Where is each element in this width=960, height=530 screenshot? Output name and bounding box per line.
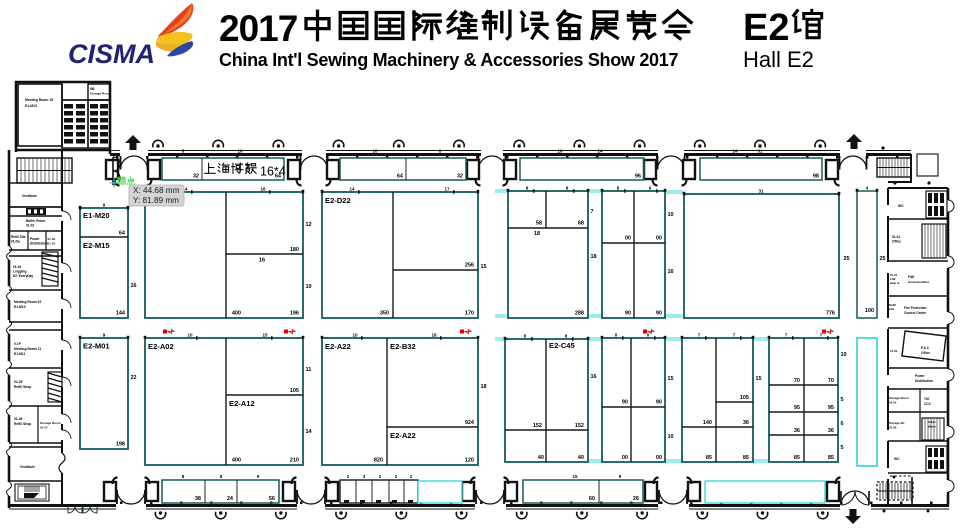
svg-text:Buffer Room: Buffer Room [26,219,45,223]
svg-text:16: 16 [237,149,243,154]
svg-text:85: 85 [828,455,834,461]
svg-text:26: 26 [633,496,639,502]
svg-text:24: 24 [597,149,603,154]
svg-text:196: 196 [290,311,299,317]
svg-text:01-06: 01-06 [14,417,23,421]
svg-text:Distribution: Distribution [915,379,933,383]
svg-text:00: 00 [622,455,628,461]
svg-text:CCC: CCC [924,402,932,406]
svg-text:90: 90 [625,311,631,317]
svg-text:12: 12 [306,222,312,228]
svg-text:Generator/Elec: Generator/Elec [908,280,930,284]
svg-text:120: 120 [465,458,474,464]
svg-text:Fire Protection: Fire Protection [904,306,927,310]
svg-text:E1-M10: E1-M10 [14,305,26,309]
svg-text:E2-D22: E2-D22 [325,196,351,205]
svg-text:14: 14 [306,429,313,435]
svg-text:198: 198 [116,442,125,448]
svg-text:WC: WC [894,457,900,461]
svg-text:96: 96 [635,174,641,180]
svg-text:Meeting Room 11: Meeting Room 11 [14,347,41,351]
svg-text:01-05: 01-05 [14,380,23,384]
svg-text:Power: Power [915,374,925,378]
svg-text:01-05: 01-05 [889,426,897,430]
svg-text:Water: Water [928,425,937,429]
svg-text:56: 56 [269,496,275,502]
svg-text:350: 350 [380,311,389,317]
svg-text:5: 5 [841,397,844,403]
svg-text:01-07: 01-07 [40,426,48,430]
svg-text:6: 6 [841,421,844,427]
svg-text:Help to: Help to [890,281,900,285]
svg-text:Office: Office [921,351,930,355]
svg-text:Odds: Odds [928,420,936,424]
svg-text:25: 25 [844,256,850,262]
svg-text:256: 256 [465,263,474,269]
svg-text:F&E: F&E [908,275,914,279]
svg-text:152: 152 [575,423,584,429]
svg-text:Meeting Room 10: Meeting Room 10 [14,300,41,304]
svg-text:105: 105 [740,395,749,401]
svg-text:10: 10 [352,333,358,338]
svg-text:10: 10 [306,284,312,290]
svg-text:16: 16 [668,269,674,275]
svg-text:16: 16 [591,374,597,380]
svg-text:210: 210 [290,458,299,464]
svg-text:01-01: 01-01 [892,235,900,239]
svg-text:18: 18 [481,384,487,390]
svg-text:Vestibule: Vestibule [20,465,35,469]
svg-text:24: 24 [227,496,234,502]
svg-text:90: 90 [622,400,628,406]
svg-text:152: 152 [533,423,542,429]
svg-text:15: 15 [481,264,487,270]
svg-text:820: 820 [374,458,383,464]
svg-text:40: 40 [578,455,584,461]
svg-text:11: 11 [306,367,312,373]
svg-text:Hall E2: Hall E2 [743,47,814,72]
svg-text:E2-C45: E2-C45 [549,341,576,350]
svg-text:Site: Site [889,307,895,311]
svg-text:776: 776 [826,311,835,317]
svg-text:5: 5 [841,445,844,451]
svg-text:180: 180 [290,247,299,253]
svg-text:85: 85 [706,455,712,461]
svg-text:85: 85 [794,455,800,461]
svg-text:22: 22 [131,375,137,381]
svg-text:95: 95 [828,405,834,411]
svg-text:10: 10 [372,149,378,154]
svg-text:01-10: 01-10 [48,242,56,246]
svg-text:01-03: 01-03 [13,265,21,269]
svg-text:16*4: 16*4 [260,165,286,179]
svg-text:01-02: 01-02 [890,349,898,353]
svg-text:18: 18 [431,333,437,338]
svg-text:16: 16 [260,187,266,192]
svg-text:Storage Ro: Storage Ro [889,421,905,425]
svg-text:00: 00 [625,236,631,242]
svg-text:32: 32 [457,174,463,180]
svg-text:14: 14 [349,187,355,192]
svg-text:16: 16 [259,258,265,264]
svg-text:E2-M15: E2-M15 [83,241,110,250]
svg-text:58: 58 [536,221,542,227]
svg-text:E2-A12: E2-A12 [229,399,255,408]
svg-text:15: 15 [572,474,578,479]
svg-text:40: 40 [538,455,544,461]
svg-text:15: 15 [756,376,762,382]
svg-text:X: 44.68 mm: X: 44.68 mm [133,186,180,195]
svg-text:E2-A22: E2-A22 [325,342,351,351]
svg-text:140: 140 [703,420,712,426]
svg-text:China Int'l Sewing Machinery &: China Int'l Sewing Machinery & Accessori… [219,50,678,70]
svg-text:Meeting Room 15: Meeting Room 15 [25,98,53,102]
svg-text:Storage Room: Storage Room [889,396,909,400]
svg-text:01-02: 01-02 [48,237,56,241]
svg-text:E1-M13: E1-M13 [25,104,37,108]
svg-text:25: 25 [880,256,886,262]
svg-text:E2-A22: E2-A22 [390,431,416,440]
svg-text:01-02: 01-02 [26,224,34,228]
svg-text:CISMA: CISMA [68,39,155,69]
svg-text:90: 90 [656,400,662,406]
svg-text:64: 64 [119,231,126,237]
svg-text:15: 15 [668,376,674,382]
svg-text:E2-A02: E2-A02 [148,342,174,351]
svg-text:00: 00 [656,455,662,461]
svg-text:144: 144 [116,311,126,317]
svg-text:P.A.C: P.A.C [921,346,930,350]
svg-text:Distribution: Distribution [30,242,48,246]
svg-text:288: 288 [575,311,584,317]
svg-text:16: 16 [131,283,137,289]
svg-text:Storage Room: Storage Room [40,421,61,425]
svg-text:Refill Shop: Refill Shop [14,385,31,389]
svg-text:E2: E2 [743,7,789,49]
svg-text:E2. EveryDay: E2. EveryDay [13,274,33,278]
svg-text:00: 00 [656,236,662,242]
svg-text:31: 31 [758,189,764,194]
svg-text:36: 36 [828,428,834,434]
svg-text:15: 15 [262,333,268,338]
svg-text:17: 17 [444,187,450,192]
svg-text:01-04: 01-04 [889,401,897,405]
svg-text:36: 36 [794,428,800,434]
svg-text:Power: Power [30,237,40,241]
svg-text:98: 98 [813,174,819,180]
svg-text:V.I.P: V.I.P [14,342,22,346]
svg-text:31: 31 [757,149,763,154]
svg-text:60: 60 [589,496,595,502]
svg-text:105: 105 [290,388,299,394]
svg-text:18: 18 [591,254,597,260]
svg-text:Refill Shop: Refill Shop [14,422,31,426]
svg-text:Y: 81.89 mm: Y: 81.89 mm [133,196,179,205]
svg-text:Office: Office [892,240,901,244]
svg-text:400: 400 [232,458,241,464]
svg-text:400: 400 [232,311,241,317]
svg-text:10: 10 [187,333,193,338]
svg-text:E1-M11: E1-M11 [14,352,26,356]
svg-text:68: 68 [578,221,584,227]
svg-text:2017: 2017 [219,8,297,49]
svg-text:6M: 6M [90,87,95,91]
svg-text:Vestibule: Vestibule [22,194,37,198]
svg-text:70: 70 [794,378,800,384]
svg-text:90: 90 [656,311,662,317]
svg-text:38: 38 [195,496,201,502]
svg-text:Storage Room: Storage Room [90,92,111,96]
svg-text:924: 924 [465,420,475,426]
svg-text:Tel/: Tel/ [924,397,929,401]
svg-text:10: 10 [668,434,674,440]
svg-text:7: 7 [591,209,594,215]
svg-text:Lingping: Lingping [13,270,27,274]
svg-text:10: 10 [668,212,674,218]
svg-text:32: 32 [193,174,199,180]
svg-text:100: 100 [865,308,874,314]
svg-text:E1-M20: E1-M20 [83,211,110,220]
svg-text:36: 36 [743,420,749,426]
svg-text:01-Da: 01-Da [11,240,20,244]
svg-text:64: 64 [397,174,404,180]
svg-text:24: 24 [732,149,738,154]
svg-text:E2-B32: E2-B32 [390,342,416,351]
svg-text:18: 18 [534,231,540,237]
svg-text:10: 10 [841,352,847,358]
svg-text:WC: WC [898,204,904,208]
svg-text:Refill Site: Refill Site [11,235,26,239]
svg-text:E2-M01: E2-M01 [83,342,110,351]
svg-text:16: 16 [557,149,563,154]
svg-text:85: 85 [743,455,749,461]
svg-text:170: 170 [465,311,474,317]
svg-text:70: 70 [828,378,834,384]
svg-text:Control Center: Control Center [904,311,927,315]
svg-text:95: 95 [794,405,800,411]
